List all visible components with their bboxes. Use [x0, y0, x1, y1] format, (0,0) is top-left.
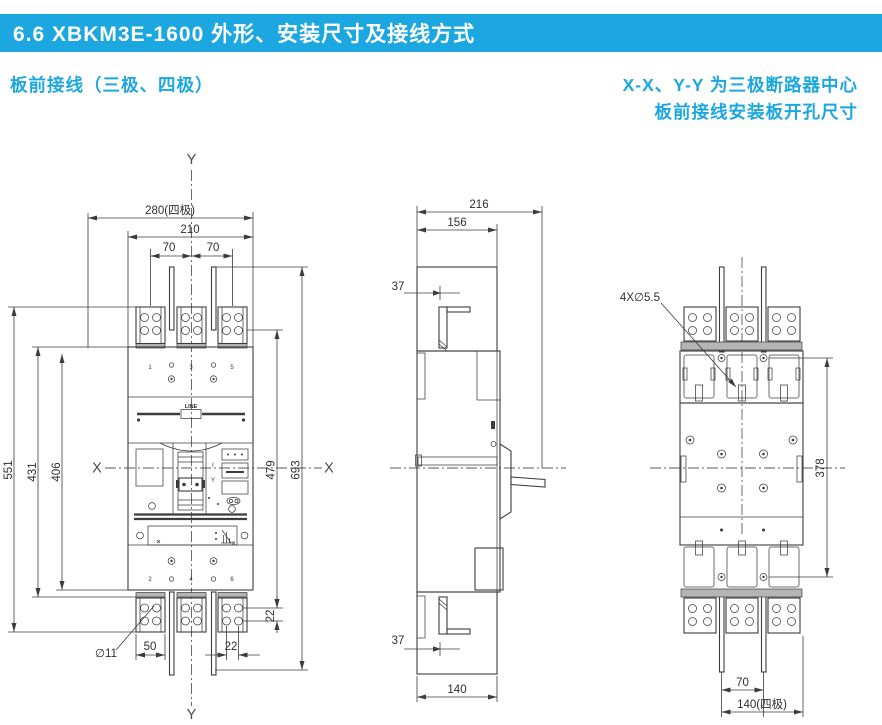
mounting-flange: [500, 444, 511, 519]
dim-pad-width: 50: [144, 641, 157, 653]
dim-terminal-span: 479: [266, 460, 278, 479]
dimension-drawings: Y Y X X: [0, 0, 882, 725]
axis-y-top: Y: [187, 152, 197, 168]
front-breaker-body: 1 3 5 LINE: [128, 347, 253, 590]
dim-hole-row-pitch: 22: [265, 610, 277, 623]
mark-y: Y: [211, 478, 215, 484]
terminal-num-5: 5: [230, 365, 234, 371]
terminal-num-1: 1: [148, 365, 152, 371]
handle-side: [511, 477, 545, 487]
mark-on: I: [212, 463, 214, 469]
dim-pole-pitch: 70: [736, 677, 749, 689]
terminal-num-6: 6: [230, 577, 234, 583]
dim-hole-dia: ∅11: [95, 648, 117, 660]
dim-pole-pitch-1: 70: [163, 242, 176, 254]
axis-y-bottom: Y: [187, 707, 197, 723]
front-view-drawing: Y Y X X: [3, 152, 334, 723]
dim-upper-height: 431: [27, 462, 39, 481]
plan-bottom-terminal-pads: [684, 598, 800, 633]
dim-mounting-holes: 4X∅5.5: [620, 292, 660, 304]
dim-overall-height: 551: [3, 460, 15, 479]
dim-lug-offset-bottom: 37: [392, 635, 405, 647]
terminal-num-3: 3: [189, 365, 193, 371]
dim-body-height: 406: [51, 462, 63, 481]
dim-overall-width-4p: 280(四极): [145, 203, 195, 217]
dim-depth-inner: 156: [447, 217, 466, 229]
dim-base-depth: 140: [447, 684, 466, 696]
dim-pole-pitch-2: 70: [207, 242, 220, 254]
terminal-num-2: 2: [148, 577, 152, 583]
dim-body-width: 210: [180, 224, 199, 236]
axis-x-left: X: [92, 461, 102, 477]
terminal-num-4: 4: [189, 577, 193, 583]
dim-lug-offset-top: 37: [392, 281, 405, 293]
catalog-page: 6.6 XBKM3E-1600 外形、安装尺寸及接线方式 板前接线（三极、四极）…: [0, 0, 882, 725]
dim-depth-overall: 216: [469, 199, 488, 211]
side-view-drawing: 216 156 37: [390, 199, 566, 702]
dim-busbar-span: 693: [291, 460, 303, 479]
dim-vertical-span: 378: [815, 458, 827, 477]
drill-plan-drawing: 4X∅5.5: [620, 257, 845, 717]
line-label: LINE: [185, 404, 198, 410]
dim-hole-col-pitch: 22: [225, 641, 238, 653]
axis-x-right: X: [324, 461, 334, 477]
dim-width-4p: 140(四极): [737, 697, 787, 711]
